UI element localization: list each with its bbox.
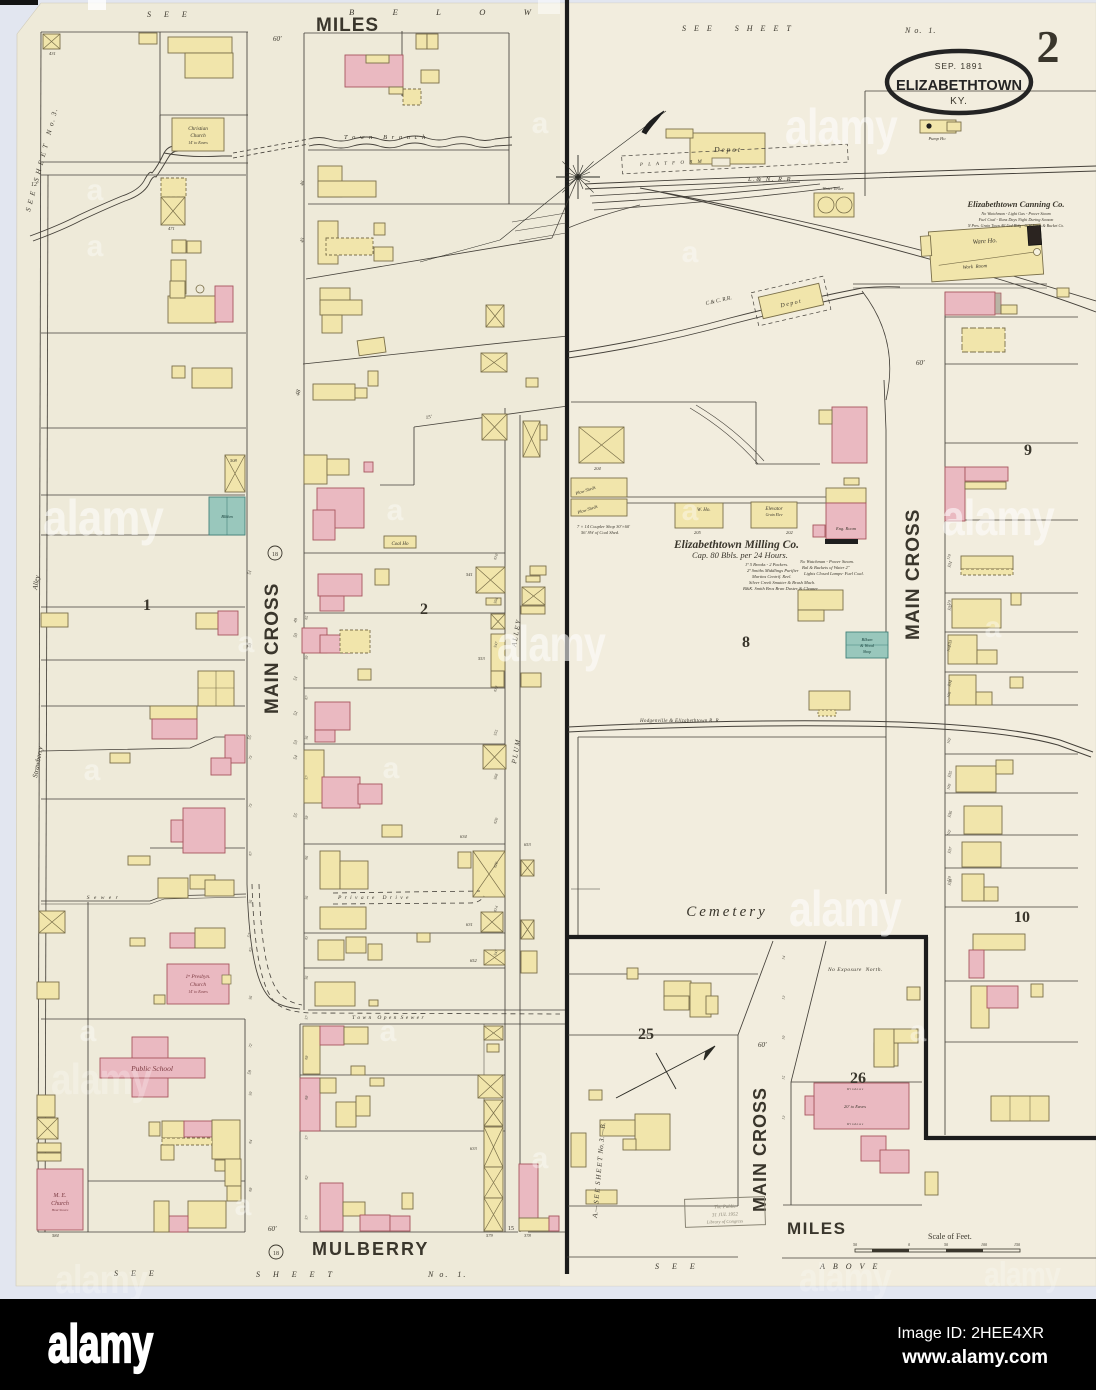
svg-text:alamy: alamy: [43, 490, 164, 546]
svg-text:Hodgenville & Elizabethtown R.: Hodgenville & Elizabethtown R. R.: [639, 719, 720, 724]
svg-text:a: a: [532, 1142, 549, 1175]
svg-text:Pump Ho: Pump Ho: [927, 136, 946, 141]
svg-text:www.alamy.com: www.alamy.com: [901, 1347, 1048, 1368]
svg-text:a: a: [84, 754, 101, 787]
svg-text:Cap. 80 Bbls. per 24 Hours.: Cap. 80 Bbls. per 24 Hours.: [692, 550, 788, 560]
svg-text:652: 652: [470, 958, 478, 963]
svg-text:50: 50: [853, 1242, 857, 1247]
svg-text:60′: 60′: [916, 359, 925, 367]
svg-text:508: 508: [230, 458, 238, 463]
svg-text:Heat Stoves: Heat Stoves: [51, 1208, 69, 1212]
svg-text:14′ to Eaves: 14′ to Eaves: [188, 140, 208, 145]
svg-text:631: 631: [466, 922, 473, 927]
svg-text:1: 1: [143, 597, 151, 614]
svg-text:Blkhm: Blkhm: [221, 514, 233, 519]
svg-text:Cemetery: Cemetery: [686, 904, 767, 920]
svg-text:Eng. Room: Eng. Room: [835, 526, 857, 531]
svg-text:Blksm: Blksm: [862, 637, 874, 642]
svg-text:a: a: [383, 752, 400, 785]
svg-text:Image ID: 2HEE4XR: Image ID: 2HEE4XR: [897, 1325, 1044, 1342]
svg-text:Elizabethtown Canning Co.: Elizabethtown Canning Co.: [966, 199, 1064, 209]
svg-text:No Watchman - Power Steam.: No Watchman - Power Steam.: [799, 559, 854, 564]
svg-text:KY.: KY.: [950, 96, 968, 107]
svg-text:S E E: S E E: [147, 10, 190, 19]
svg-text:60′: 60′: [268, 1225, 277, 1233]
svg-text:Church: Church: [51, 1201, 69, 1207]
svg-text:20′ to Eaves: 20′ to Eaves: [844, 1104, 866, 1109]
svg-text:18: 18: [272, 552, 278, 558]
svg-text:SEP. 1891: SEP. 1891: [935, 61, 984, 71]
svg-text:60′: 60′: [273, 35, 282, 43]
svg-text:100: 100: [981, 1242, 987, 1247]
svg-text:Church: Church: [190, 133, 206, 139]
svg-text:a: a: [87, 230, 104, 263]
svg-text:MILES: MILES: [316, 15, 379, 36]
svg-text:431: 431: [49, 51, 56, 56]
svg-text:& Wood: & Wood: [860, 643, 875, 648]
svg-text:a: a: [235, 1189, 252, 1222]
svg-text:MILES: MILES: [787, 1219, 846, 1238]
svg-text:8: 8: [742, 634, 750, 651]
svg-text:25: 25: [638, 1026, 654, 1043]
svg-text:Silver Creek Smutter & Brush M: Silver Creek Smutter & Brush Mach.: [749, 580, 815, 585]
svg-text:579: 579: [486, 1233, 494, 1238]
svg-text:18: 18: [273, 1251, 279, 1257]
svg-text:W i n d o w s: W i n d o w s: [847, 1087, 864, 1091]
svg-text:alamy: alamy: [799, 1256, 892, 1300]
svg-text:alamy: alamy: [497, 616, 606, 672]
svg-text:N Pres. Grain Town All Urd Bld: N Pres. Grain Town All Urd Bldg - G.W.Jo…: [967, 223, 1064, 228]
svg-text:N o. 1.: N o. 1.: [904, 26, 936, 35]
svg-text:L.& N. R.R.: L.& N. R.R.: [747, 176, 795, 183]
svg-text:D e p o t: D e p o t: [713, 145, 741, 154]
svg-text:B&K. Smith Bros Bran Duster &: B&K. Smith Bros Bran Duster & Cleaner: [743, 586, 818, 591]
svg-text:584: 584: [52, 1233, 60, 1238]
svg-text:alamy: alamy: [55, 1258, 148, 1302]
svg-text:1º 5 Breaks - 2 Packers.: 1º 5 Breaks - 2 Packers.: [745, 562, 788, 567]
svg-text:ELIZABETHTOWN: ELIZABETHTOWN: [896, 77, 1022, 94]
svg-text:alamy: alamy: [789, 881, 902, 937]
svg-text:7 × 14 Coupler Shop 30′×60′: 7 × 14 Coupler Shop 30′×60′: [577, 524, 631, 529]
svg-text:204: 204: [594, 466, 602, 471]
svg-text:a: a: [910, 1015, 927, 1048]
svg-text:0: 0: [908, 1242, 910, 1247]
svg-text:a: a: [985, 611, 1002, 644]
svg-text:M. E.: M. E.: [52, 1193, 66, 1199]
svg-text:Shop: Shop: [863, 649, 871, 654]
svg-text:2º Smiths Middlings Purifier: 2º Smiths Middlings Purifier: [747, 568, 799, 573]
svg-text:No Watchman - Light Gas - Powe: No Watchman - Light Gas - Power Steam: [980, 211, 1050, 216]
svg-text:MULBERRY: MULBERRY: [312, 1239, 429, 1259]
svg-text:Grain Elev: Grain Elev: [766, 513, 783, 517]
svg-text:alamy: alamy: [51, 1055, 152, 1104]
svg-text:205: 205: [694, 530, 702, 535]
svg-text:633: 633: [470, 1146, 478, 1151]
svg-text:a: a: [238, 626, 255, 659]
svg-text:a: a: [87, 174, 104, 207]
svg-text:15: 15: [508, 1226, 514, 1232]
svg-text:Martins Centrif. Reel.: Martins Centrif. Reel.: [751, 574, 792, 579]
svg-text:26: 26: [850, 1070, 866, 1087]
svg-text:10: 10: [1014, 909, 1030, 926]
svg-text:50: 50: [944, 1242, 948, 1247]
svg-text:Bal & Buckets of Water 2″: Bal & Buckets of Water 2″: [802, 565, 850, 570]
svg-text:P r i v a t e D r i v e: P r i v a t e D r i v e: [337, 895, 410, 901]
svg-text:553: 553: [478, 656, 486, 661]
svg-text:Christian: Christian: [188, 126, 208, 132]
svg-text:T o w n B r a n c h: T o w n B r a n c h: [344, 134, 427, 141]
svg-text:634: 634: [460, 834, 468, 839]
svg-text:9: 9: [1024, 442, 1032, 459]
svg-text:W i n d o w s: W i n d o w s: [847, 1122, 864, 1126]
svg-text:a: a: [682, 494, 699, 527]
svg-text:60′: 60′: [758, 1041, 767, 1049]
svg-text:56′ SW of Coal Shed.: 56′ SW of Coal Shed.: [581, 530, 619, 535]
svg-text:The Public: The Public: [714, 1205, 737, 1211]
svg-text:W. Ho.: W. Ho.: [697, 508, 711, 513]
svg-text:1ⁿ Presbyn.: 1ⁿ Presbyn.: [185, 974, 210, 980]
svg-text:Coal Ho: Coal Ho: [391, 542, 409, 547]
svg-text:541: 541: [466, 572, 473, 577]
svg-text:a: a: [80, 1015, 97, 1048]
svg-text:12′: 12′: [31, 182, 39, 188]
svg-text:S E E S H E E T: S E E S H E E T: [682, 24, 794, 33]
svg-text:Scale of Feet.: Scale of Feet.: [928, 1232, 972, 1241]
svg-text:378: 378: [524, 1233, 532, 1238]
svg-text:14′ to Eaves: 14′ to Eaves: [188, 989, 208, 994]
svg-text:653: 653: [524, 842, 532, 847]
svg-text:No Exposure North.: No Exposure North.: [827, 967, 883, 973]
svg-text:2: 2: [420, 601, 428, 618]
svg-text:S H E E T: S H E E T: [256, 1270, 335, 1279]
svg-text:alamy: alamy: [48, 1315, 153, 1374]
svg-text:Church: Church: [190, 982, 207, 988]
svg-text:Lights Closed Lamps- Fuel Coal: Lights Closed Lamps- Fuel Coal.: [803, 571, 864, 576]
svg-text:S e w e r: S e w e r: [87, 895, 119, 901]
svg-text:alamy: alamy: [785, 99, 898, 155]
svg-text:S E E: S E E: [655, 1262, 698, 1271]
svg-text:N o. 1.: N o. 1.: [427, 1270, 467, 1279]
svg-text:Water Tower: Water Tower: [822, 186, 844, 191]
svg-text:a: a: [387, 494, 404, 527]
svg-text:202: 202: [786, 530, 794, 535]
svg-text:MAIN CROSS: MAIN CROSS: [262, 583, 283, 714]
svg-text:471: 471: [168, 226, 175, 231]
svg-text:a: a: [532, 107, 549, 140]
svg-text:2: 2: [1037, 21, 1060, 72]
svg-text:Elevator: Elevator: [764, 507, 782, 512]
svg-text:a: a: [682, 236, 699, 269]
svg-text:MAIN CROSS: MAIN CROSS: [750, 1087, 770, 1212]
svg-text:31 JUL 1952: 31 JUL 1952: [712, 1213, 739, 1219]
svg-text:150: 150: [1014, 1242, 1020, 1247]
svg-text:Fuel Coal - Runs Days Night Du: Fuel Coal - Runs Days Night During Seaso…: [978, 217, 1054, 222]
svg-text:MAIN CROSS: MAIN CROSS: [903, 509, 924, 640]
svg-text:alamy: alamy: [984, 1256, 1061, 1294]
svg-text:alamy: alamy: [942, 490, 1055, 546]
svg-text:a: a: [380, 1015, 397, 1048]
